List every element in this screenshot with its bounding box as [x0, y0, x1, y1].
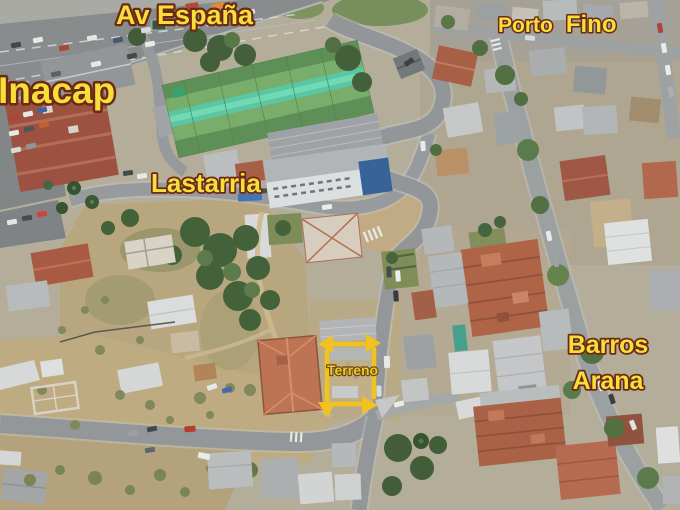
label-barros: Barros [568, 331, 649, 359]
label-fino: Fino [566, 11, 617, 38]
label-arana: Arana [573, 367, 645, 395]
label-terreno: Terreno [327, 362, 378, 378]
aerial-photo-canvas: Terreno Av España Inacap PortoFino Lasta… [0, 0, 680, 510]
label-av-espana: Av España [116, 0, 254, 30]
label-porto: Porto [498, 14, 553, 37]
aerial-photo: Terreno Av España Inacap PortoFino Lasta… [0, 0, 680, 510]
label-inacap: Inacap [0, 70, 115, 111]
label-lastarria: Lastarria [151, 168, 261, 198]
